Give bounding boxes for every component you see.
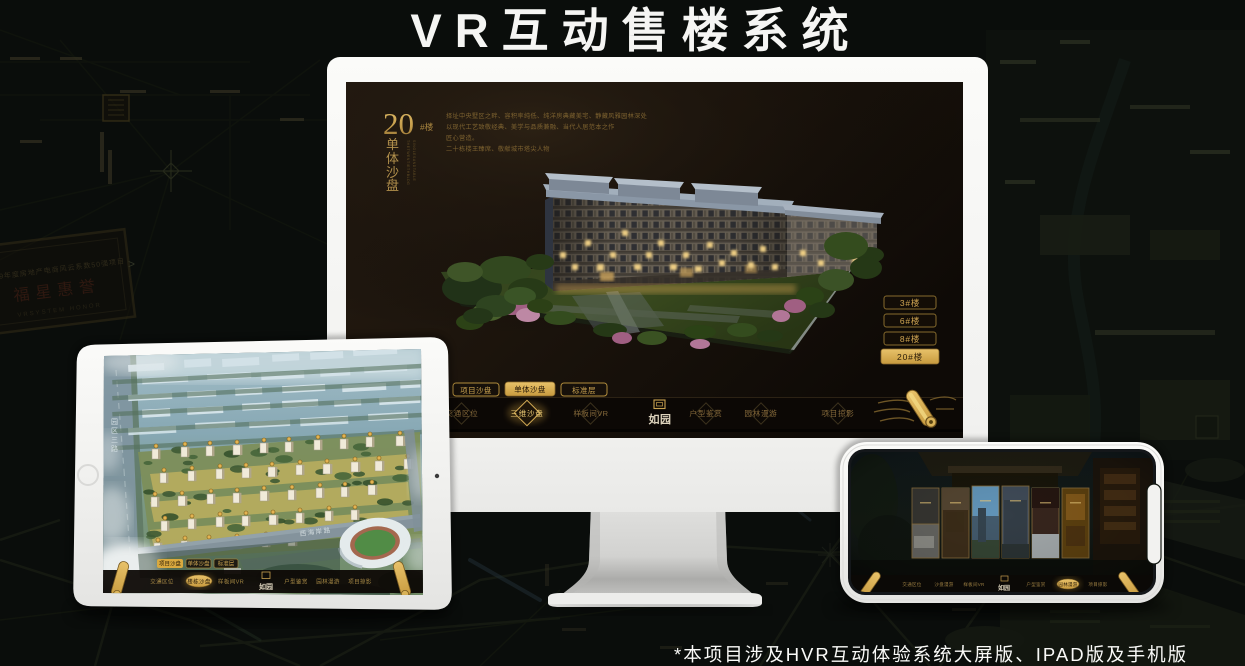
- svg-text:*本项目涉及HVR互动体验系统大屏版、IPAD版及手机版: *本项目涉及HVR互动体验系统大屏版、IPAD版及手机版: [674, 644, 1188, 665]
- svg-text:THETWENTIETHBLDG: THETWENTIETHBLDG: [406, 140, 410, 185]
- svg-text:20#楼: 20#楼: [897, 352, 923, 362]
- svg-text:SINGLESANDTABLE: SINGLESANDTABLE: [412, 140, 416, 181]
- svg-text:单: 单: [386, 137, 399, 152]
- svg-text:如园: 如园: [259, 582, 273, 591]
- svg-text:项目掠影: 项目掠影: [821, 408, 854, 418]
- svg-text:项目沙盘: 项目沙盘: [159, 560, 182, 568]
- svg-text:如园: 如园: [998, 584, 1010, 592]
- svg-text:以现代工艺致敬经典、美学与品质兼融、当代人居范本之作: 以现代工艺致敬经典、美学与品质兼融、当代人居范本之作: [446, 123, 615, 131]
- svg-text:样板间VR: 样板间VR: [574, 408, 609, 418]
- svg-text:交通区位: 交通区位: [150, 578, 174, 586]
- svg-text:>: >: [128, 257, 135, 271]
- svg-text:6#楼: 6#楼: [900, 316, 920, 326]
- svg-text:单体沙盘: 单体沙盘: [187, 560, 210, 568]
- svg-text:单体沙盘: 单体沙盘: [514, 384, 546, 394]
- svg-text:#楼: #楼: [420, 122, 434, 132]
- svg-text:园林漫游: 园林漫游: [1058, 581, 1077, 588]
- svg-text:项目掠影: 项目掠影: [1088, 581, 1107, 588]
- svg-text:样板间VR: 样板间VR: [963, 581, 985, 588]
- svg-text:样板间VR: 样板间VR: [218, 578, 244, 586]
- svg-text:体: 体: [386, 151, 399, 166]
- svg-text:8#楼: 8#楼: [900, 334, 920, 344]
- svg-text:三维沙盘: 三维沙盘: [510, 408, 543, 418]
- svg-text:20: 20: [383, 106, 414, 141]
- svg-text:户型鉴赏: 户型鉴赏: [284, 578, 308, 586]
- svg-text:标准层: 标准层: [572, 385, 596, 395]
- svg-text:沙盘漫游: 沙盘漫游: [934, 581, 953, 588]
- svg-text:园林漫游: 园林漫游: [744, 408, 777, 418]
- svg-text:匠心营造。: 匠心营造。: [446, 134, 478, 142]
- svg-text:项目沙盘: 项目沙盘: [460, 385, 492, 395]
- svg-text:园林漫游: 园林漫游: [316, 578, 340, 586]
- svg-text:如园: 如园: [649, 412, 672, 426]
- svg-text:标准层: 标准层: [218, 560, 235, 568]
- svg-text:VR互动售楼系统: VR互动售楼系统: [410, 4, 861, 57]
- svg-text:项目掠影: 项目掠影: [348, 578, 372, 586]
- svg-text:择址中央墅区之畔、容积率纯低、纯洋房典藏美宅、静藏风雅园林深: 择址中央墅区之畔、容积率纯低、纯洋房典藏美宅、静藏风雅园林深处: [446, 112, 647, 120]
- svg-text:二十栋楼王臻席、敬献城市塔尖人物: 二十栋楼王臻席、敬献城市塔尖人物: [446, 145, 550, 153]
- svg-text:交通区位: 交通区位: [902, 581, 921, 588]
- svg-text:楼栋沙盘: 楼栋沙盘: [187, 578, 211, 586]
- svg-text:户型鉴赏: 户型鉴赏: [689, 408, 722, 418]
- svg-text:3#楼: 3#楼: [900, 298, 920, 308]
- svg-text:盘: 盘: [386, 178, 399, 193]
- svg-text:户型鉴赏: 户型鉴赏: [1026, 581, 1045, 588]
- svg-text:园区三路: 园区三路: [111, 418, 119, 454]
